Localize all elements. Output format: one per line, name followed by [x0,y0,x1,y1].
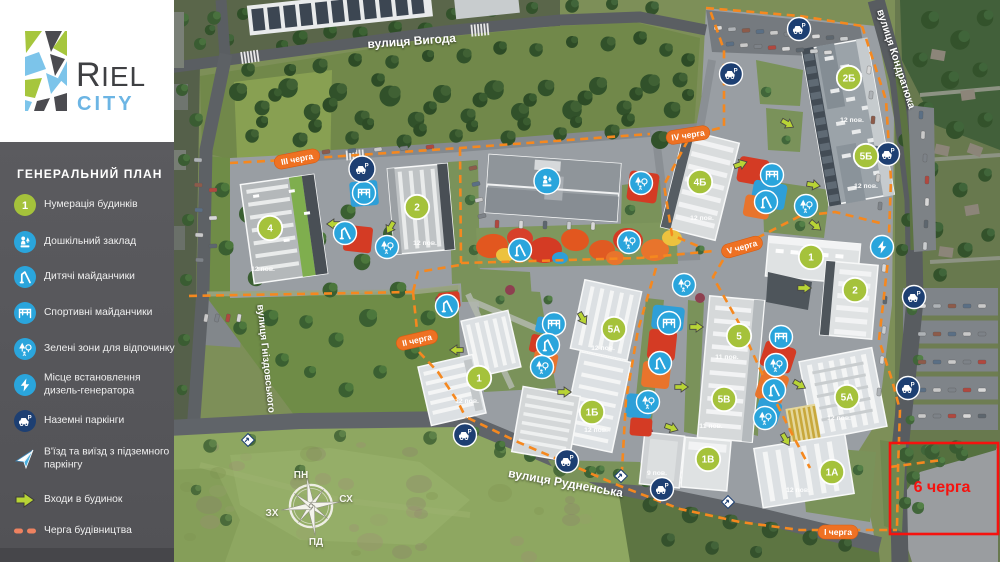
svg-text:11 пов.: 11 пов. [699,423,723,430]
svg-text:5А: 5А [608,325,621,336]
svg-text:5: 5 [736,332,742,343]
svg-text:P: P [665,483,669,489]
svg-text:12 пов.: 12 пов. [455,398,479,405]
svg-text:12 пов.: 12 пов. [251,266,275,273]
svg-text:ПД: ПД [309,537,323,548]
svg-text:2: 2 [414,203,420,214]
svg-text:1В: 1В [702,455,715,466]
svg-text:P: P [570,455,574,461]
svg-text:P: P [365,163,369,169]
svg-text:4: 4 [267,224,273,235]
svg-text:1Б: 1Б [586,408,599,419]
svg-text:1: 1 [476,374,482,385]
svg-text:1А: 1А [826,468,839,479]
svg-text:1: 1 [22,200,28,212]
svg-text:ЗХ: ЗХ [266,508,279,519]
svg-text:1: 1 [808,253,814,264]
svg-text:12 пов.: 12 пов. [584,427,608,434]
svg-text:P: P [734,68,738,74]
svg-text:12 пов.: 12 пов. [840,117,864,124]
svg-text:P: P [802,23,806,29]
svg-text:5А: 5А [841,393,854,404]
svg-text:12 пов.: 12 пов. [827,415,851,422]
svg-text:2: 2 [852,286,858,297]
svg-text:P: P [28,415,32,421]
svg-text:I черга: I черга [824,527,852,537]
svg-text:12 пов.: 12 пов. [854,183,878,190]
svg-text:12 пов.: 12 пов. [591,345,615,352]
svg-text:12 пов.: 12 пов. [690,215,714,222]
svg-text:12 пов.: 12 пов. [786,487,810,494]
svg-text:P: P [911,382,915,388]
svg-text:ПН: ПН [294,470,308,481]
svg-text:СХ: СХ [339,494,353,505]
svg-text:4Б: 4Б [694,178,707,189]
svg-text:12 пов.: 12 пов. [413,240,437,247]
svg-text:P: P [891,148,895,154]
svg-text:P: P [468,429,472,435]
svg-text:P: P [917,291,921,297]
svg-text:5Б: 5Б [860,152,873,163]
svg-text:2Б: 2Б [843,74,856,85]
svg-text:5В: 5В [718,395,731,406]
svg-text:6 черга: 6 черга [914,479,971,496]
svg-text:11 пов.: 11 пов. [715,354,739,361]
svg-text:9 пов.: 9 пов. [647,470,667,477]
